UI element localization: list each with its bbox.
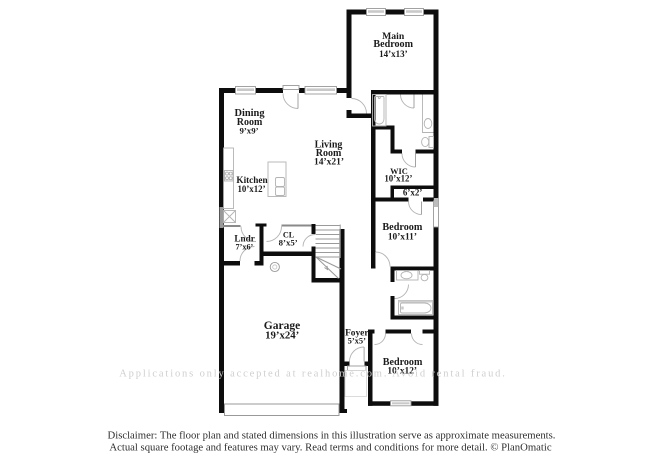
svg-text:Disclaimer: The floor plan and: Disclaimer: The floor plan and stated di… [108,429,556,441]
svg-text:10’x12’: 10’x12’ [237,184,265,194]
svg-text:19’x24’: 19’x24’ [265,330,299,342]
svg-text:14’x21’: 14’x21’ [314,157,344,167]
svg-text:5’x5’: 5’x5’ [348,335,367,345]
svg-text:Applications only accepted at: Applications only accepted at realhome.c… [119,369,507,380]
svg-text:Bedroom: Bedroom [382,222,423,233]
svg-text:10’x11’: 10’x11’ [388,232,417,242]
svg-text:Actual square footage and feat: Actual square footage and features may v… [109,442,551,454]
svg-text:6’x2’: 6’x2’ [403,187,423,197]
svg-text:10’x12’: 10’x12’ [384,174,412,184]
svg-text:8’x5’: 8’x5’ [279,237,298,247]
svg-text:14’x13’: 14’x13’ [379,49,408,59]
svg-text:7’x6’: 7’x6’ [236,243,254,252]
svg-text:9’x9’: 9’x9’ [239,126,258,136]
